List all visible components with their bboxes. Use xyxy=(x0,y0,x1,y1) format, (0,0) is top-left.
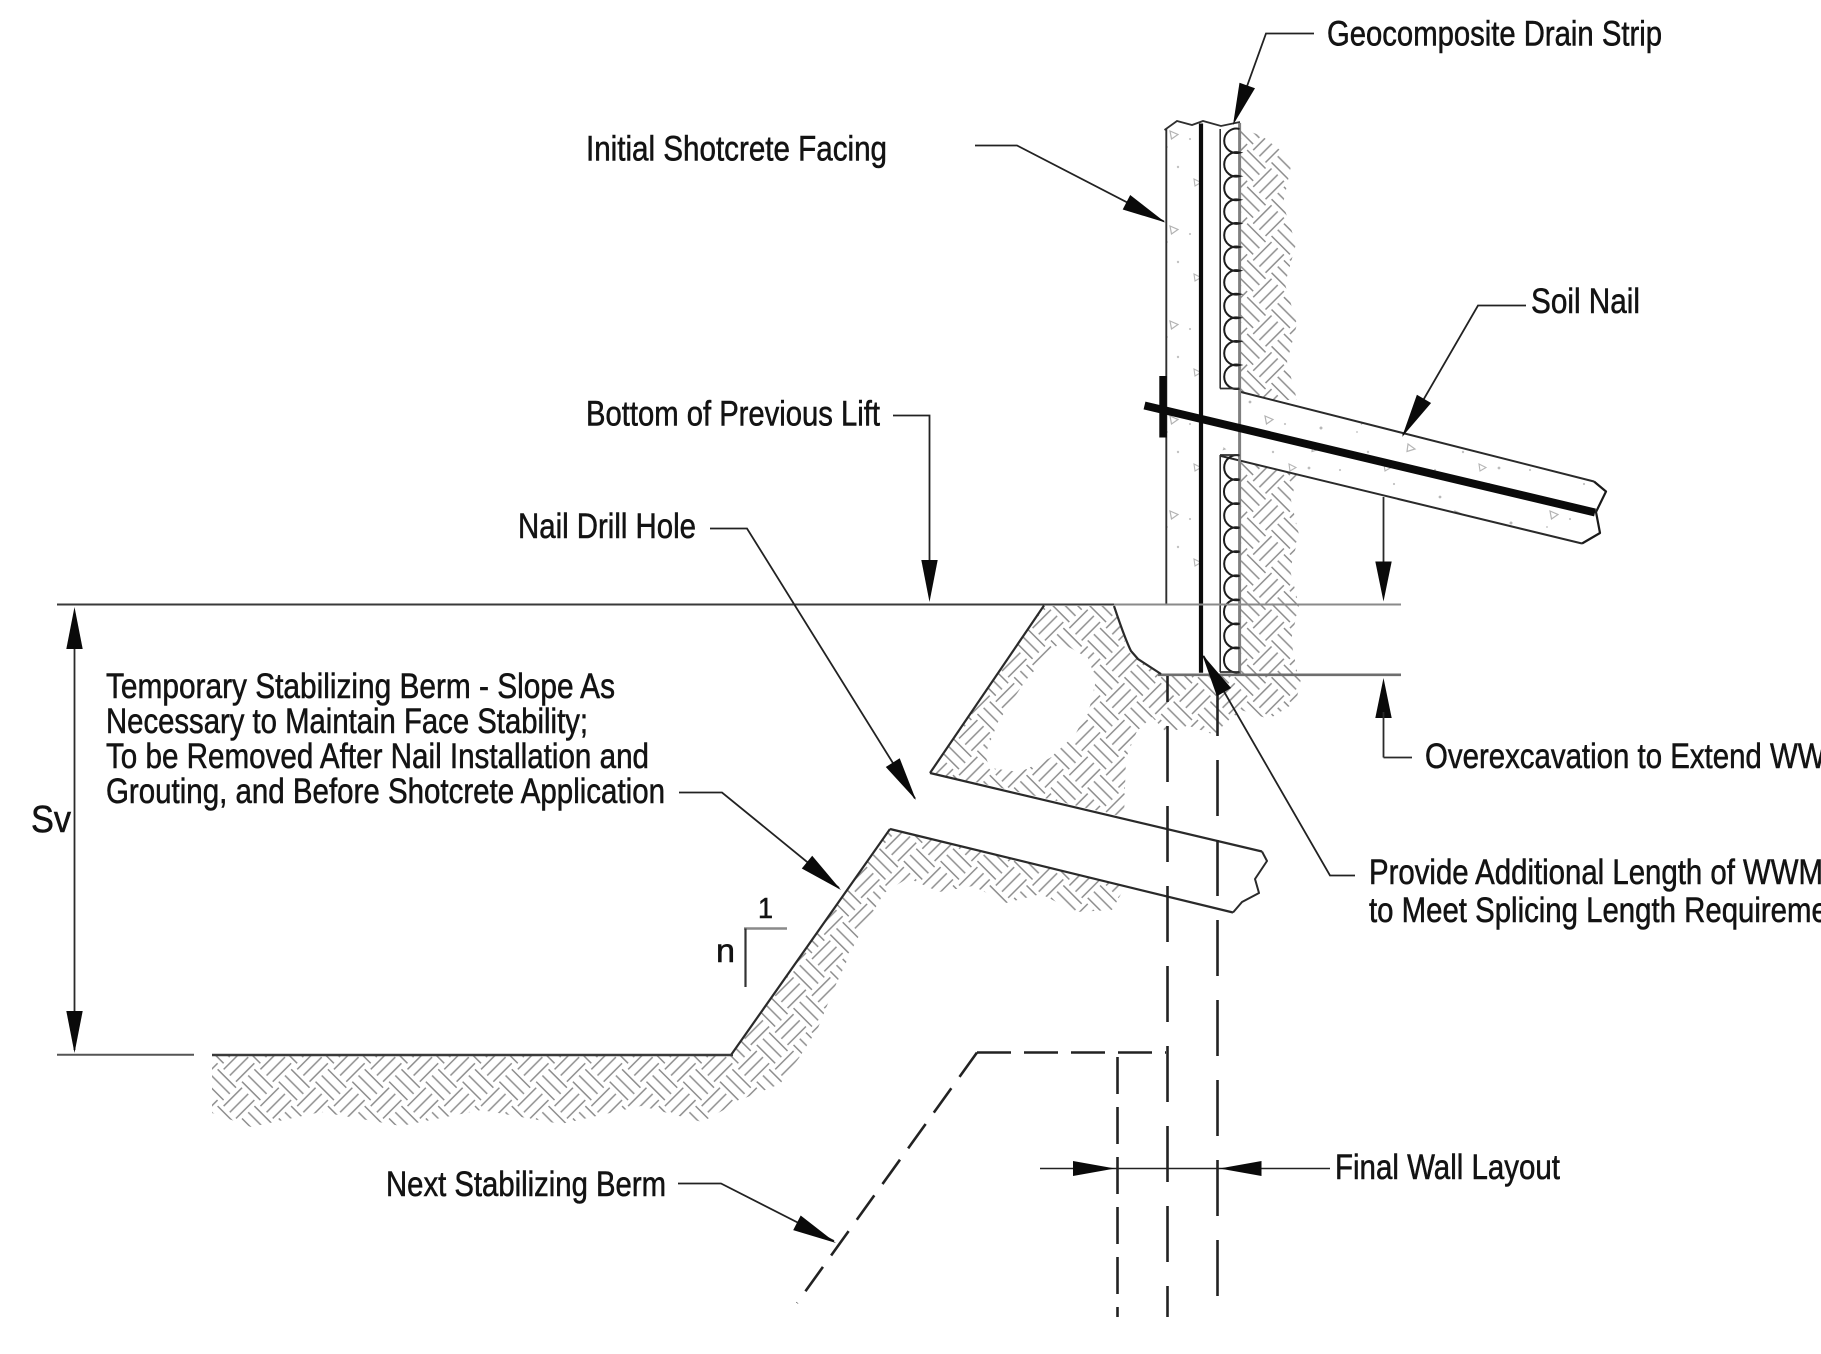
svg-text:n: n xyxy=(716,932,735,969)
svg-text:Sv: Sv xyxy=(31,799,71,841)
svg-text:Necessary to Maintain Face Sta: Necessary to Maintain Face Stability; xyxy=(106,702,588,741)
svg-text:to Meet Splicing Length Requir: to Meet Splicing Length Requirements xyxy=(1369,891,1821,930)
svg-text:Nail Drill Hole: Nail Drill Hole xyxy=(518,507,696,546)
svg-text:Geocomposite Drain Strip: Geocomposite Drain Strip xyxy=(1327,15,1662,54)
svg-text:Bottom of Previous Lift: Bottom of Previous Lift xyxy=(586,395,880,434)
svg-text:Next Stabilizing Berm: Next Stabilizing Berm xyxy=(386,1165,666,1204)
svg-text:Grouting, and Before Shotcrete: Grouting, and Before Shotcrete Applicati… xyxy=(106,772,665,811)
svg-text:Provide Additional Length of W: Provide Additional Length of WWM xyxy=(1369,853,1821,892)
svg-text:Temporary Stabilizing Berm - S: Temporary Stabilizing Berm - Slope As xyxy=(106,667,615,706)
svg-text:1: 1 xyxy=(758,893,773,925)
svg-text:Final Wall Layout: Final Wall Layout xyxy=(1335,1148,1560,1187)
svg-text:Initial Shotcrete Facing: Initial Shotcrete Facing xyxy=(586,130,887,169)
svg-text:Soil Nail: Soil Nail xyxy=(1531,282,1640,321)
svg-text:To be Removed After Nail Insta: To be Removed After Nail Installation an… xyxy=(106,737,649,776)
svg-text:Overexcavation to Extend WWM: Overexcavation to Extend WWM xyxy=(1425,737,1821,776)
